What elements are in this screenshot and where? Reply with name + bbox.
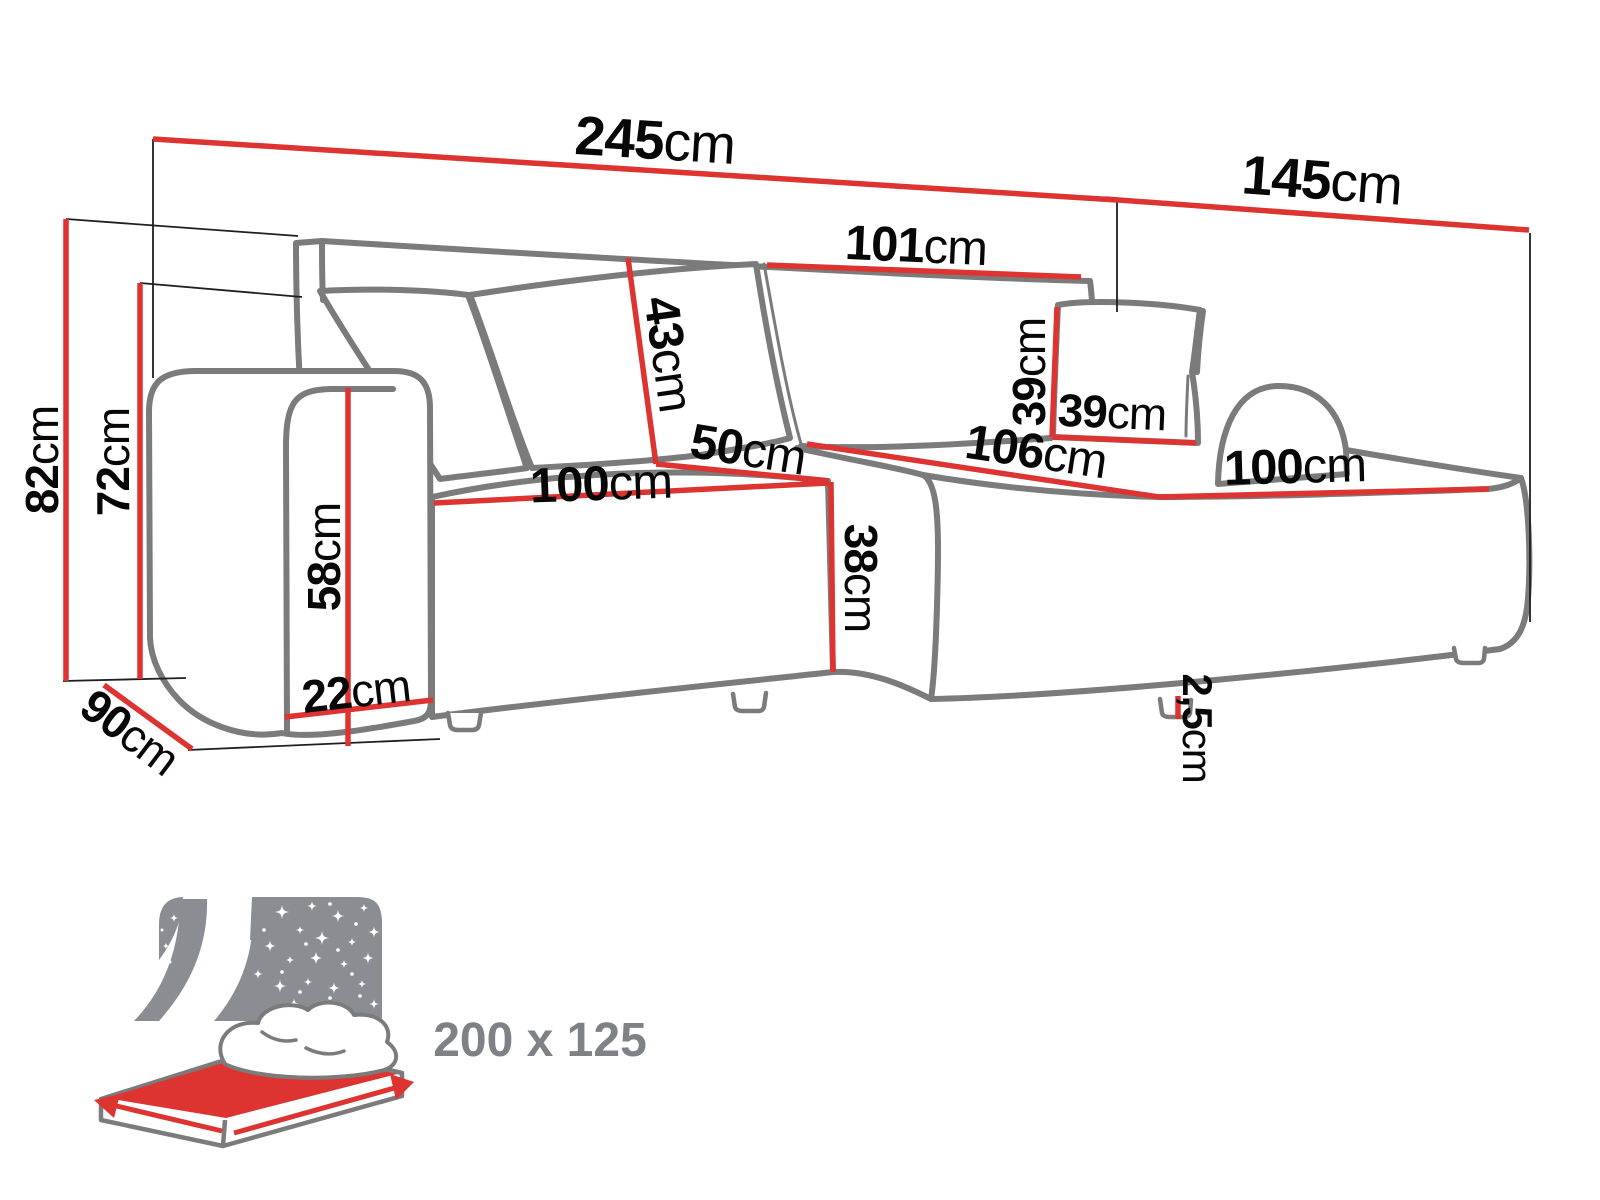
label-leg-height: 2,5cm bbox=[1175, 673, 1222, 782]
label-cushion-width: 39cm bbox=[1057, 384, 1168, 441]
leg-middle bbox=[733, 693, 766, 711]
label-cushion-height: 39cm bbox=[1003, 318, 1055, 427]
label-seat-height: 38cm bbox=[835, 524, 887, 633]
ext-back-height-top bbox=[140, 283, 302, 297]
label-total-width: 245cm bbox=[573, 104, 737, 176]
sofa-back-left-post bbox=[296, 241, 323, 384]
label-armrest-height: 58cm bbox=[298, 503, 350, 612]
label-chaise-seat: 100cm bbox=[1223, 438, 1366, 496]
sleeping-area-icon: 200 x 125 bbox=[0, 897, 647, 1146]
label-back-section: 101cm bbox=[844, 216, 988, 276]
chaise-body bbox=[923, 475, 1529, 699]
front-bottom-corner bbox=[833, 672, 931, 699]
ext-total-height-top bbox=[66, 219, 298, 236]
sleeping-area-label: 200 x 125 bbox=[433, 1014, 647, 1067]
mattress-front-seam bbox=[223, 1120, 225, 1146]
leg-chaise-right bbox=[1454, 648, 1485, 663]
label-side-depth: 145cm bbox=[1240, 143, 1404, 217]
diagram-canvas: 245cm 145cm 101cm 43cm 50cm 100cm 106cm … bbox=[0, 0, 1600, 1200]
sofa-dimensions-diagram: 245cm 145cm 101cm 43cm 50cm 100cm 106cm … bbox=[0, 0, 1600, 1200]
leg-front-left bbox=[448, 713, 481, 730]
line-seat-height bbox=[831, 482, 833, 672]
chaise-top-right-edge bbox=[1346, 450, 1521, 478]
night-curtain-top bbox=[250, 897, 382, 940]
label-total-height: 82cm bbox=[16, 406, 68, 515]
label-left-seat: 100cm bbox=[529, 455, 673, 514]
ext-floor-diagonal bbox=[188, 739, 440, 750]
label-back-height: 72cm bbox=[87, 408, 139, 517]
